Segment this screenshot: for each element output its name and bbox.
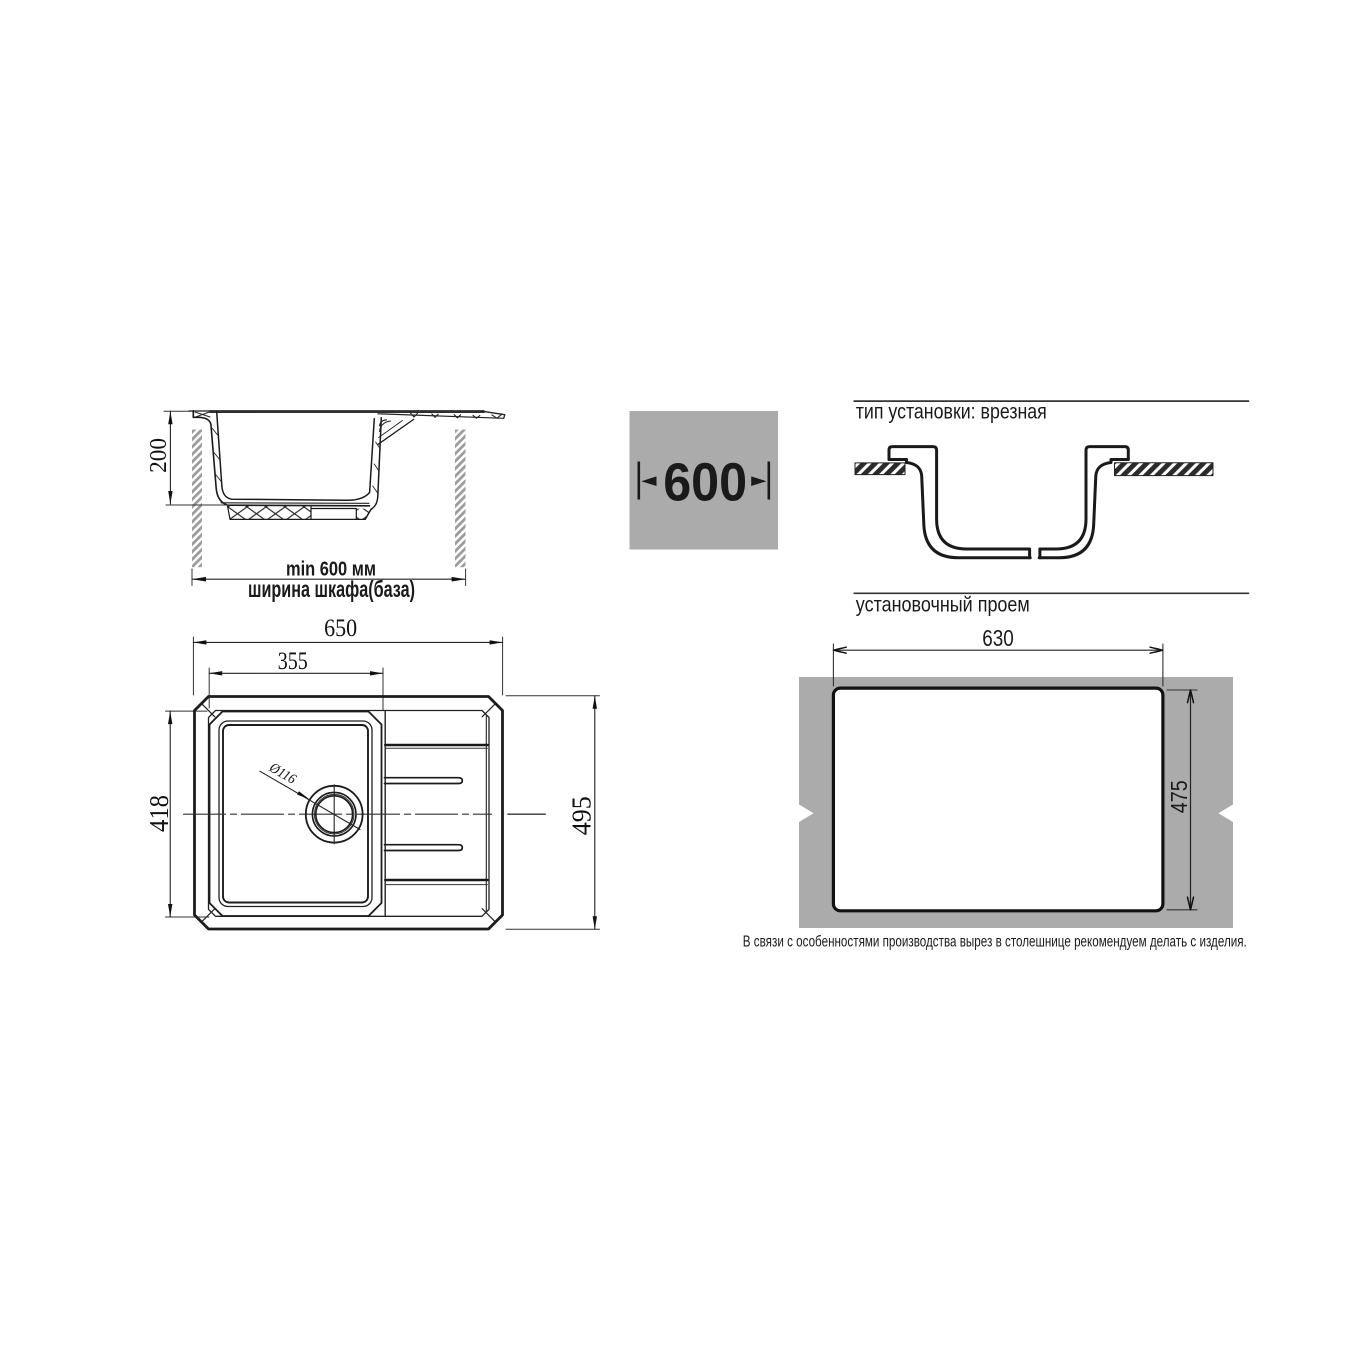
- svg-text:475: 475: [1166, 780, 1192, 813]
- svg-text:тип установки: врезная: тип установки: врезная: [856, 400, 1047, 423]
- svg-text:355: 355: [278, 648, 308, 675]
- svg-text:установочный проем: установочный проем: [856, 594, 1030, 617]
- svg-text:600: 600: [663, 453, 747, 513]
- svg-text:ширина шкафа(база): ширина шкафа(база): [248, 576, 415, 602]
- svg-text:650: 650: [324, 615, 357, 642]
- svg-text:630: 630: [982, 625, 1014, 651]
- svg-text:495: 495: [567, 796, 597, 835]
- svg-text:В связи с особенностями произв: В связи с особенностями производства выр…: [743, 933, 1247, 950]
- svg-text:200: 200: [146, 438, 172, 473]
- svg-text:418: 418: [144, 795, 174, 832]
